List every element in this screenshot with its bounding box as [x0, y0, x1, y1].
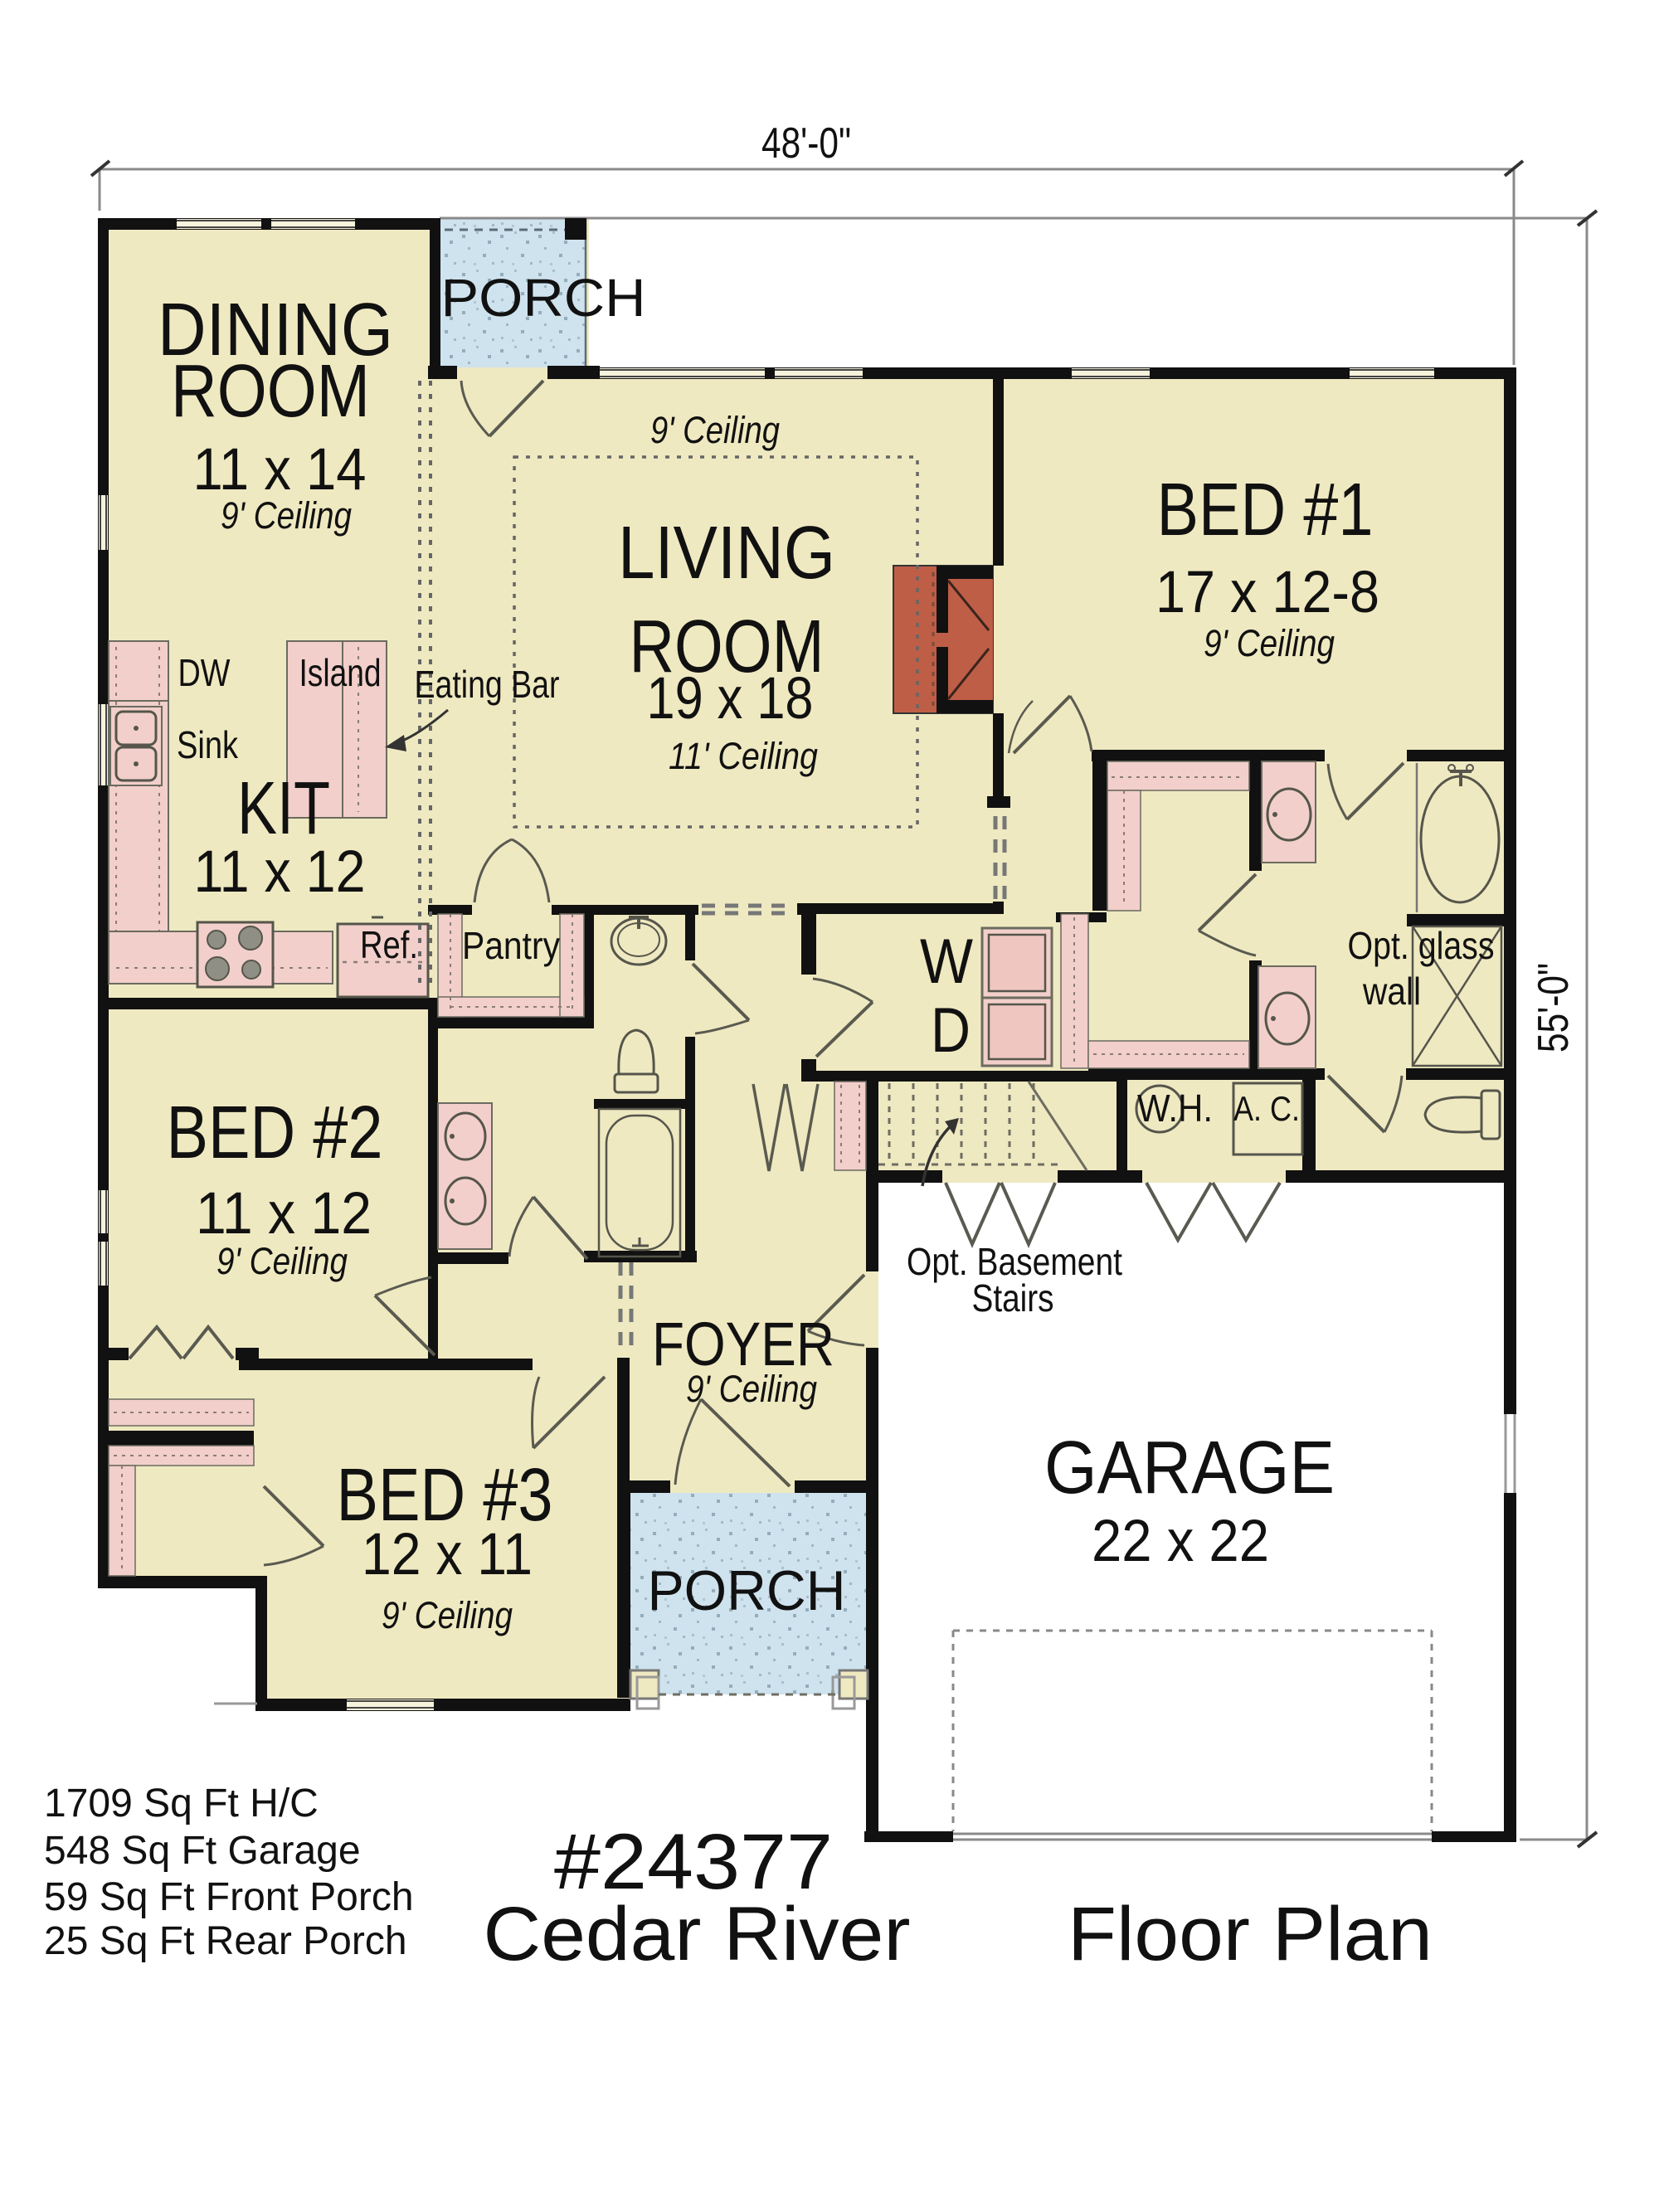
svg-text:9' Ceiling: 9' Ceiling: [686, 1368, 817, 1410]
svg-text:9' Ceiling: 9' Ceiling: [216, 1240, 348, 1282]
svg-text:11 x 14: 11 x 14: [193, 437, 367, 503]
svg-text:9' Ceiling: 9' Ceiling: [1204, 622, 1335, 664]
svg-text:1709 Sq Ft H/C: 1709 Sq Ft H/C: [44, 1782, 319, 1826]
svg-text:Opt. glass: Opt. glass: [1348, 924, 1495, 967]
svg-text:DW: DW: [178, 651, 231, 694]
svg-text:22 x 22: 22 x 22: [1092, 1509, 1269, 1574]
svg-text:D: D: [931, 995, 971, 1066]
svg-text:Eating Bar: Eating Bar: [415, 663, 560, 706]
svg-text:Ref.: Ref.: [360, 923, 418, 966]
svg-text:ROOM: ROOM: [171, 350, 370, 433]
svg-text:25 Sq Ft Rear Porch: 25 Sq Ft Rear Porch: [44, 1919, 407, 1963]
svg-text:548 Sq Ft Garage: 548 Sq Ft Garage: [44, 1829, 361, 1873]
svg-text:KIT: KIT: [237, 767, 330, 850]
svg-text:Stairs: Stairs: [972, 1276, 1054, 1320]
svg-text:Cedar River: Cedar River: [484, 1892, 911, 1976]
svg-text:9' Ceiling: 9' Ceiling: [650, 409, 780, 451]
svg-text:55'-0": 55'-0": [1530, 963, 1578, 1053]
svg-text:W: W: [920, 926, 973, 997]
svg-text:GARAGE: GARAGE: [1044, 1427, 1335, 1510]
svg-text:Island: Island: [299, 651, 382, 694]
svg-text:W.H.: W.H.: [1137, 1087, 1213, 1130]
svg-text:LIVING: LIVING: [618, 512, 835, 595]
svg-text:9' Ceiling: 9' Ceiling: [382, 1594, 513, 1636]
svg-text:11 x 12: 11 x 12: [194, 839, 366, 905]
svg-text:11 x 12: 11 x 12: [196, 1181, 372, 1247]
svg-text:Pantry: Pantry: [462, 924, 560, 967]
svg-text:Sink: Sink: [177, 723, 239, 766]
svg-text:wall: wall: [1362, 970, 1421, 1013]
svg-text:19 x 18: 19 x 18: [647, 666, 814, 732]
svg-text:17 x 12-8: 17 x 12-8: [1155, 560, 1379, 625]
svg-text:11' Ceiling: 11' Ceiling: [669, 735, 818, 777]
svg-text:A. C.: A. C.: [1233, 1089, 1300, 1128]
svg-text:59 Sq Ft Front Porch: 59 Sq Ft Front Porch: [44, 1875, 414, 1919]
svg-text:BED #1: BED #1: [1157, 469, 1374, 552]
svg-text:9' Ceiling: 9' Ceiling: [221, 494, 352, 537]
svg-text:Floor Plan: Floor Plan: [1068, 1892, 1433, 1976]
svg-text:48'-0": 48'-0": [761, 119, 851, 168]
svg-text:12 x 11: 12 x 11: [362, 1522, 533, 1587]
svg-text:BED #2: BED #2: [167, 1091, 383, 1174]
svg-text:PORCH: PORCH: [648, 1559, 846, 1622]
svg-text:PORCH: PORCH: [441, 268, 646, 328]
